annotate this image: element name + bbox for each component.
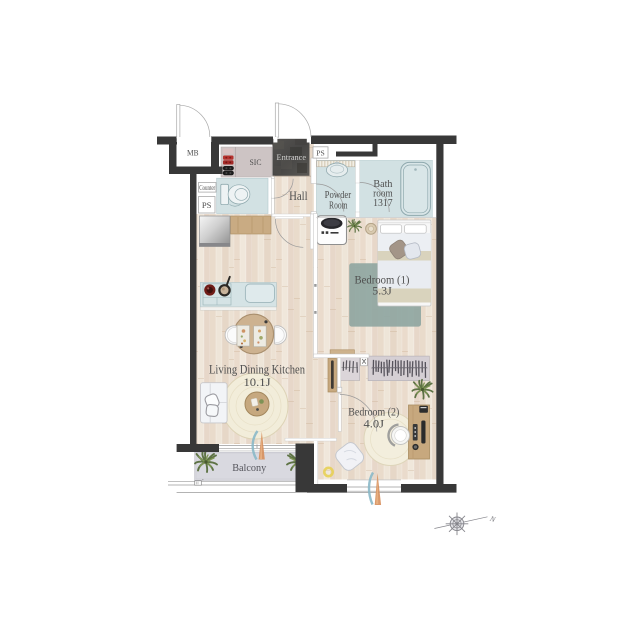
svg-text:SIC: SIC (250, 158, 262, 167)
svg-text:MB: MB (187, 149, 199, 158)
svg-text:Hall: Hall (289, 188, 308, 203)
svg-text:10.1J: 10.1J (244, 375, 271, 389)
svg-text:Entrance: Entrance (277, 153, 307, 162)
svg-text:5.3J: 5.3J (372, 285, 392, 297)
svg-text:PS: PS (202, 200, 212, 210)
svg-text:Balcony: Balcony (232, 462, 267, 474)
svg-text:1317: 1317 (373, 197, 393, 209)
svg-text:4.0J: 4.0J (364, 418, 385, 430)
svg-text:Room: Room (329, 199, 348, 211)
svg-text:Counter: Counter (199, 185, 216, 192)
svg-text:PS: PS (316, 149, 324, 158)
svg-text:Bedroom (2): Bedroom (2) (348, 407, 399, 419)
